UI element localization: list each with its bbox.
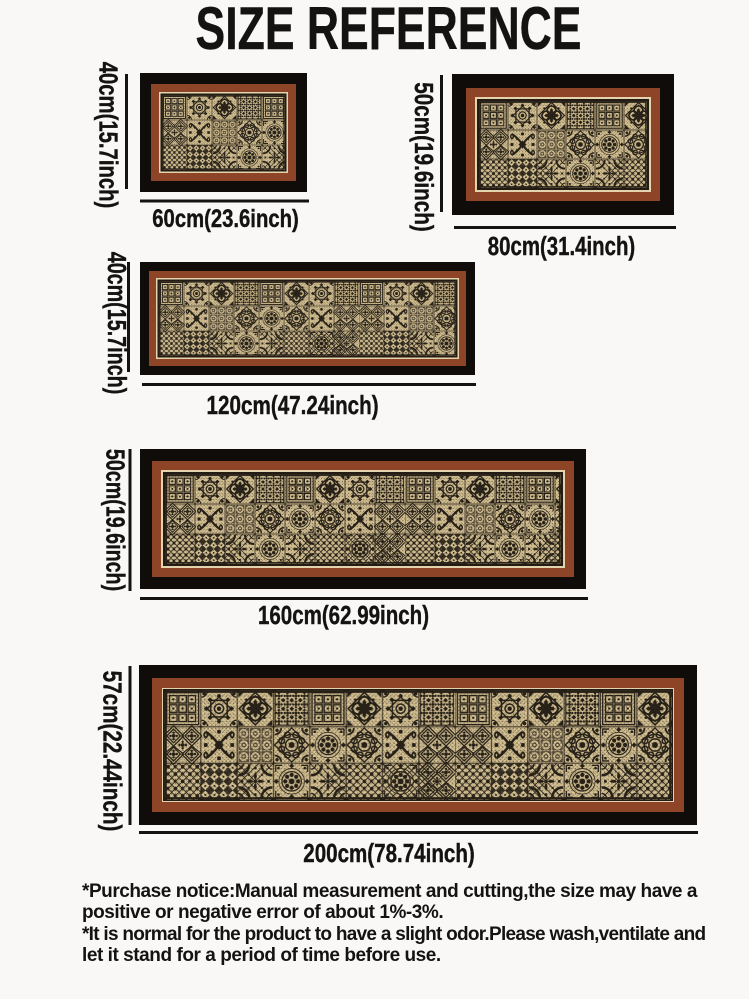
svg-text:57cm(22.44inch): 57cm(22.44inch) (98, 671, 127, 832)
svg-text:200cm(78.74inch): 200cm(78.74inch) (303, 839, 474, 868)
svg-text:40cm(15.7inch): 40cm(15.7inch) (94, 62, 123, 209)
svg-text:160cm(62.99inch): 160cm(62.99inch) (258, 601, 429, 630)
svg-text:SIZE REFERENCE: SIZE REFERENCE (196, 0, 582, 63)
svg-text:60cm(23.6inch): 60cm(23.6inch) (152, 204, 298, 233)
svg-text:50cm(19.6inch): 50cm(19.6inch) (409, 82, 438, 231)
svg-text:120cm(47.24inch): 120cm(47.24inch) (207, 391, 379, 420)
svg-text:40cm(15.7inch): 40cm(15.7inch) (102, 252, 131, 395)
svg-text:50cm(19.6inch): 50cm(19.6inch) (101, 449, 130, 591)
svg-text:80cm(31.4inch): 80cm(31.4inch) (488, 232, 635, 261)
